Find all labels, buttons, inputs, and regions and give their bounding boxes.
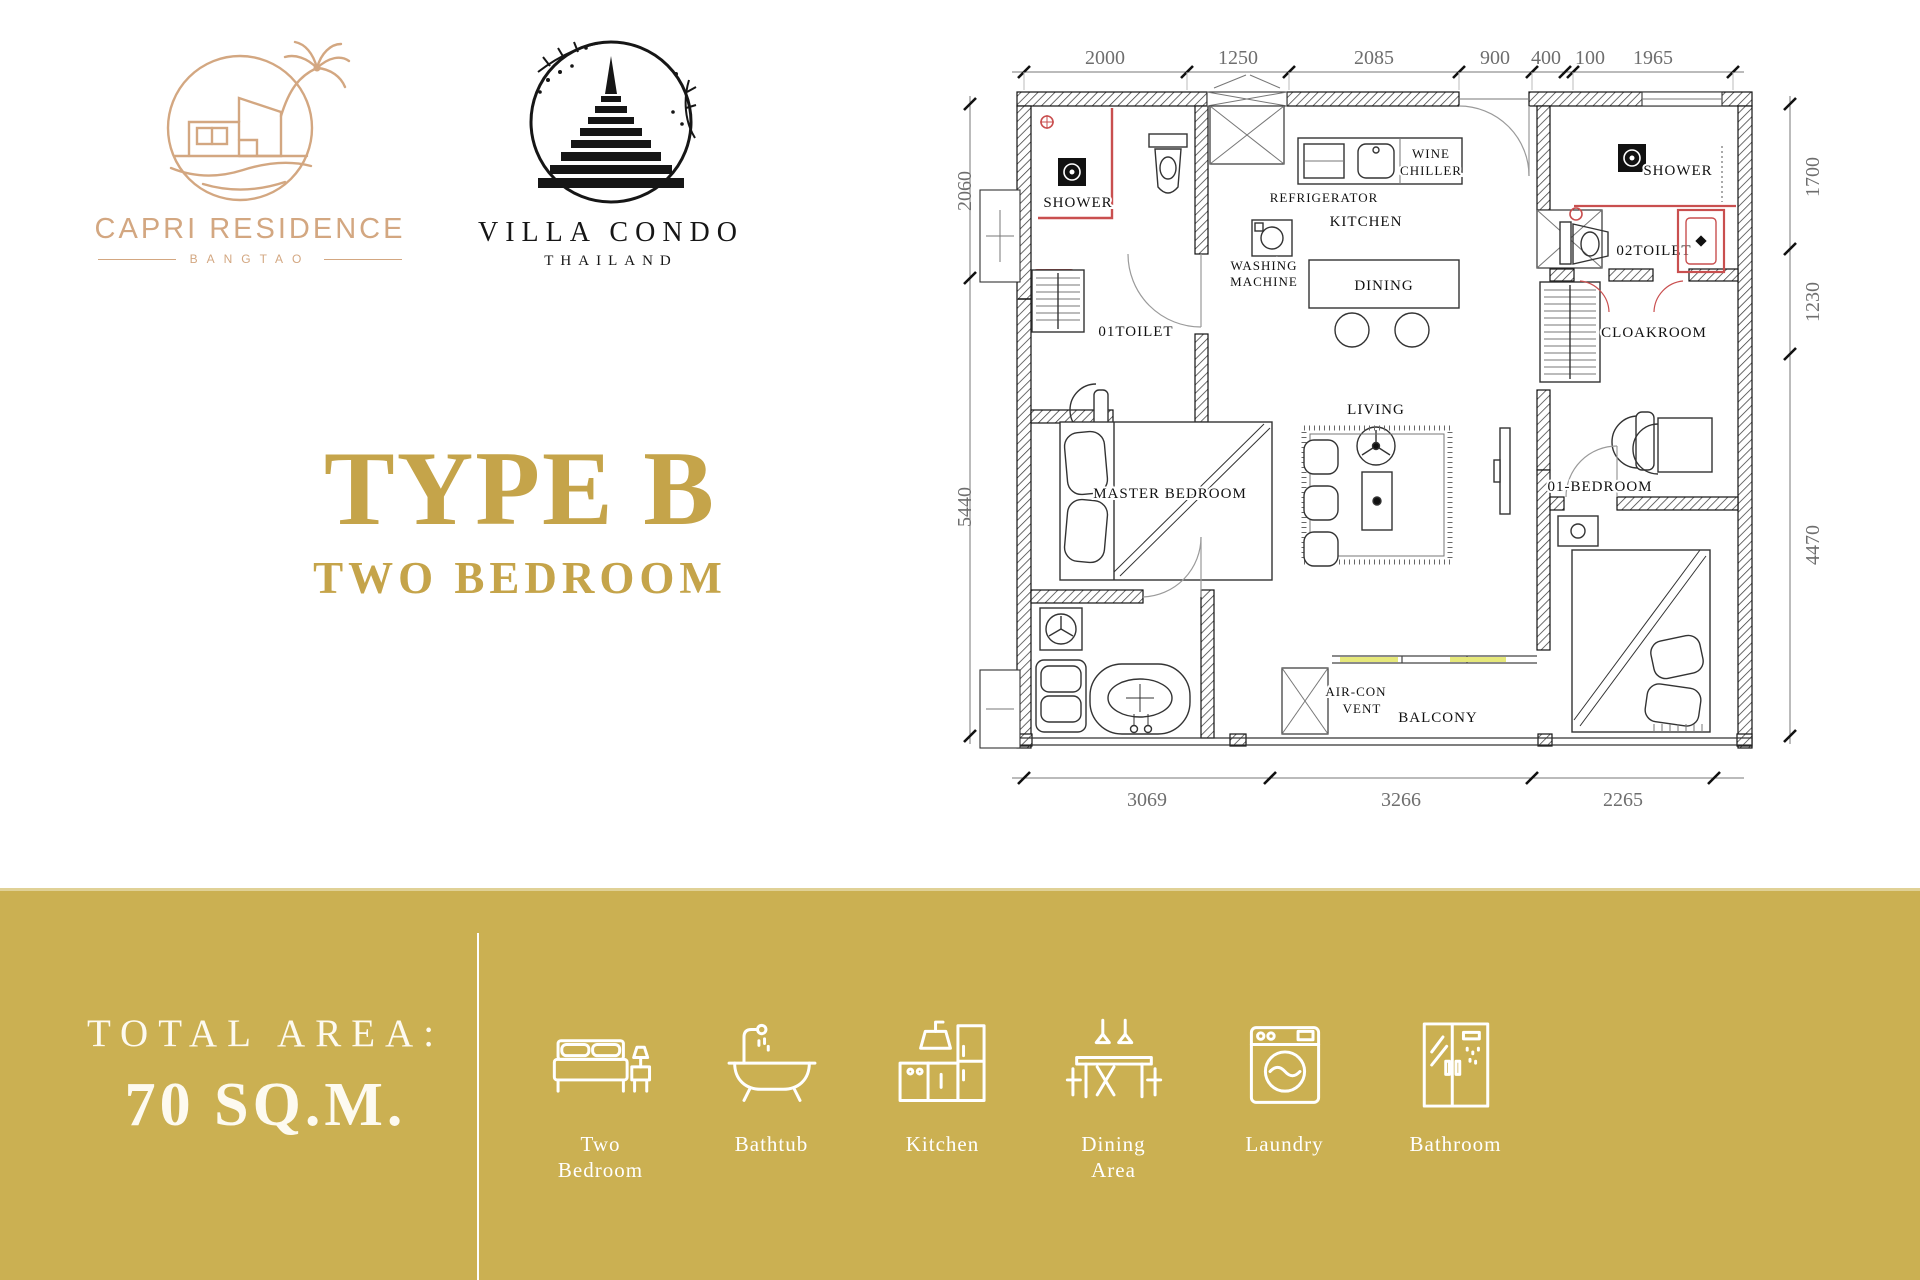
balcony-sliding-door [1332, 656, 1537, 663]
pagoda-icon [531, 42, 696, 202]
room-label-wine1: WINE [1412, 146, 1450, 161]
dim-top-1250: 1250 [1218, 47, 1258, 69]
capri-subtitle-row: BANGTAO [85, 252, 415, 266]
bathtub-room [1036, 608, 1190, 734]
bed-01 [1572, 550, 1710, 732]
dim-bottom-3266: 3266 [1381, 789, 1421, 811]
feature-kitchen: Kitchen [870, 1009, 1015, 1184]
room-label-shower1: SHOWER [1043, 195, 1112, 211]
dim-top-900: 900 [1480, 47, 1510, 69]
capri-logo: CAPRI RESIDENCE BANGTAO [85, 36, 415, 266]
room-label-cloakroom: CLOAKROOM [1601, 325, 1707, 341]
brochure-page: CAPRI RESIDENCE BANGTAO [0, 0, 1920, 1280]
bedroom-window [1642, 92, 1722, 106]
dining-icon [1058, 1009, 1170, 1121]
villa-logo-art [446, 28, 776, 210]
capri-subtitle: BANGTAO [190, 252, 311, 266]
room-label-refrigerator: REFRIGERATOR [1270, 190, 1379, 205]
bench-seat [1036, 660, 1086, 732]
door-highlight [1450, 657, 1506, 662]
master-bedroom: MASTER BEDROOM [1032, 270, 1272, 597]
dim-bottom-2265: 2265 [1603, 789, 1643, 811]
dim-bottom-3069: 3069 [1127, 789, 1167, 811]
bed-icon [545, 1009, 657, 1121]
washing-machine-symbol [1252, 220, 1292, 256]
door-highlight [1340, 657, 1398, 662]
wardrobe-master [1032, 270, 1084, 332]
nightstand [1558, 516, 1598, 546]
feature-label: Kitchen [887, 1131, 999, 1157]
dim-left-5440: 5440 [954, 487, 976, 527]
entrance-door [1459, 99, 1529, 176]
unit-type-title: TYPE B [180, 436, 860, 542]
unit-type-subtitle: TWO BEDROOM [180, 552, 860, 604]
room-label-toilet2: 02TOILET [1616, 243, 1691, 259]
room-label-living: LIVING [1347, 402, 1405, 418]
features-row: Two Bedroom Bathtub [528, 1009, 1528, 1184]
shower-tray [1678, 210, 1724, 272]
dining-island [1309, 260, 1459, 347]
shaft-box [1210, 106, 1284, 164]
room-label-bedroom01: 01-BEDROOM [1547, 479, 1652, 495]
room-label-shower2: SHOWER [1643, 163, 1712, 179]
feature-bathtub: Bathtub [699, 1009, 844, 1184]
shower-head-symbol-2 [1618, 144, 1646, 172]
total-area-block: TOTAL AREA: 70 SQ.M. [78, 1011, 453, 1141]
room-label-balcony: BALCONY [1398, 710, 1478, 726]
dim-left-2060: 2060 [954, 171, 976, 211]
kitchen-icon [887, 1009, 999, 1121]
villa-name: VILLA CONDO [446, 217, 776, 249]
total-area-label: TOTAL AREA: [78, 1011, 453, 1056]
coffee-table [1362, 472, 1392, 530]
vertical-divider [477, 933, 479, 1280]
balcony-zone: AIR-CON VENT BALCONY [1282, 668, 1478, 734]
feature-two-bedroom: Two Bedroom [528, 1009, 673, 1184]
bathroom-icon [1400, 1009, 1512, 1121]
dim-right-4470: 4470 [1802, 525, 1824, 565]
feature-dining-area: Dining Area [1041, 1009, 1186, 1184]
room-label-dining: DINING [1354, 278, 1413, 294]
feature-label: Bathtub [716, 1131, 828, 1157]
villa-subtitle: THAILAND [446, 253, 776, 270]
feature-label: Bathroom [1400, 1131, 1512, 1157]
house-palm-icon [168, 42, 349, 200]
bathtub-symbol [1090, 664, 1190, 734]
laundry-icon [1229, 1009, 1341, 1121]
room-label-wine2: CHILLER [1400, 163, 1462, 178]
room-label-kitchen: KITCHEN [1330, 214, 1403, 230]
dim-top-400: 400 [1531, 47, 1561, 69]
entry-window [1207, 75, 1287, 106]
fan-coil-symbol [1040, 608, 1082, 650]
total-area-value: 70 SQ.M. [78, 1070, 453, 1141]
dim-top-1965: 1965 [1633, 47, 1673, 69]
dim-top-100: 100 [1575, 47, 1605, 69]
room-label-washing2: MACHINE [1230, 274, 1298, 289]
feature-label: Laundry [1229, 1131, 1341, 1157]
dim-top-2000: 2000 [1085, 47, 1125, 69]
floor-plan: 2000 1250 2085 900 400 100 1965 2060 544… [952, 42, 1832, 837]
divider-line [324, 259, 402, 260]
aircon-vent-box [1282, 668, 1328, 734]
room-label-aircon2: VENT [1343, 701, 1382, 716]
room-label-toilet1: 01TOILET [1098, 324, 1173, 340]
wardrobe [1540, 282, 1600, 382]
feature-label: Dining Area [1058, 1131, 1170, 1184]
room-label-master: MASTER BEDROOM [1093, 486, 1247, 502]
feature-laundry: Laundry [1212, 1009, 1357, 1184]
lounge-chair [1612, 412, 1654, 470]
floor-plan-drawing: 2000 1250 2085 900 400 100 1965 2060 544… [952, 42, 1832, 832]
unit-type-block: TYPE B TWO BEDROOM [180, 436, 860, 604]
dim-top-2085: 2085 [1354, 47, 1394, 69]
room-label-washing1: WASHING [1231, 258, 1298, 273]
bedroom-01: 01-BEDROOM [1547, 479, 1710, 732]
room-label-aircon1: AIR-CON [1325, 684, 1386, 699]
dim-right-1700: 1700 [1802, 157, 1824, 197]
living-zone: LIVING [1304, 402, 1537, 663]
divider-line [98, 259, 176, 260]
bathtub-icon [716, 1009, 828, 1121]
dim-right-1230: 1230 [1802, 282, 1824, 322]
toilet-symbol [1149, 134, 1187, 193]
capri-logo-art [85, 36, 415, 204]
facade-columns [980, 190, 1020, 748]
armchairs [1304, 440, 1338, 566]
kitchen-zone: WASHING MACHINE WINE CHILLER REFRIGERATO… [1210, 106, 1462, 347]
feature-label: Two Bedroom [545, 1131, 657, 1184]
feature-bathroom: Bathroom [1383, 1009, 1528, 1184]
capri-name: CAPRI RESIDENCE [85, 213, 415, 246]
ceiling-fan-symbol [1357, 427, 1395, 465]
tv-console [1494, 428, 1510, 514]
villa-condo-logo: VILLA CONDO THAILAND [446, 28, 776, 270]
shower-head-symbol [1058, 158, 1086, 186]
footer-band: TOTAL AREA: 70 SQ.M. [0, 888, 1920, 1280]
